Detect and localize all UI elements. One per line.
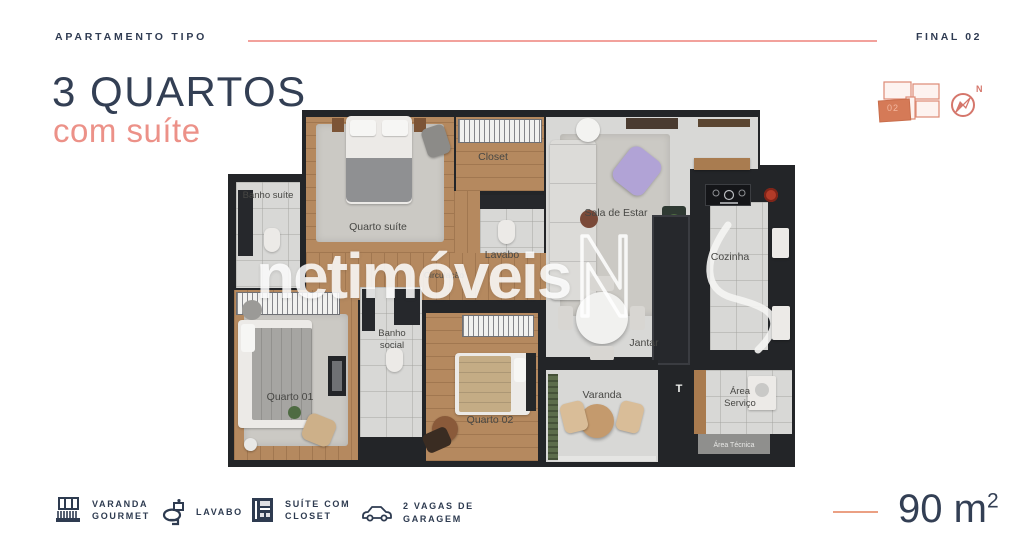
legend-line: VARANDA — [92, 498, 150, 511]
side-table — [576, 118, 600, 142]
page-title: 3 QUARTOS — [52, 68, 307, 116]
header-divider-line — [248, 40, 877, 42]
label-quarto-02: Quarto 02 — [467, 415, 514, 427]
label-quarto-01: Quarto 01 — [267, 392, 314, 404]
appliance — [772, 228, 789, 258]
page-subtitle: com suíte — [53, 112, 201, 150]
legend-item-vagas-garagem: 2 VAGAS DE GARAGEM — [361, 500, 474, 525]
legend-item-varanda-gourmet: VARANDA GOURMET — [54, 496, 150, 524]
shelf — [698, 119, 750, 127]
cooking-pot — [764, 188, 778, 202]
legend-line: 2 VAGAS DE — [403, 500, 474, 513]
area-divider-line — [833, 511, 878, 513]
legend-line: GOURMET — [92, 510, 150, 523]
dining-table — [576, 292, 628, 344]
corridor-strip — [454, 191, 480, 253]
label-cozinha: Cozinha — [711, 252, 750, 264]
label-area-servico: Área Serviço — [714, 386, 766, 409]
pillow — [350, 120, 376, 136]
blanket — [459, 356, 511, 412]
wardrobe-rack — [458, 119, 542, 143]
legend-text: VARANDA GOURMET — [92, 498, 150, 523]
legend-line: SUÍTE COM — [285, 498, 350, 511]
vanity — [362, 289, 375, 331]
toilet — [498, 220, 515, 244]
closet-icon — [249, 496, 275, 524]
keyplan-unit-number: 02 — [887, 103, 899, 113]
page-eyebrow: APARTAMENTO TIPO — [55, 31, 207, 43]
blanket — [346, 158, 412, 202]
legend-text: 2 VAGAS DE GARAGEM — [403, 500, 474, 525]
flyer-page: APARTAMENTO TIPO FINAL 02 3 QUARTOS com … — [0, 0, 1033, 541]
chair — [630, 306, 645, 330]
legend-item-lavabo: LAVABO — [162, 498, 243, 526]
label-banho-suite: Banho suíte — [243, 190, 294, 202]
shower — [394, 289, 420, 325]
area-value: 90 m — [898, 487, 987, 531]
building-keyplan: 02 — [876, 79, 950, 131]
legend-line: LAVABO — [196, 506, 243, 519]
toilet — [264, 228, 280, 252]
mirror — [332, 361, 342, 391]
counter-bar — [694, 158, 750, 170]
compass-north-label: N — [976, 84, 983, 94]
legend-line: CLOSET — [285, 510, 350, 523]
label-jantar: Jantar — [629, 338, 658, 350]
tanque-square: T — [666, 376, 692, 402]
legend-text: SUÍTE COM CLOSET — [285, 498, 350, 523]
compass: N — [948, 84, 988, 122]
varanda-divider-wall — [546, 360, 658, 370]
plant — [288, 406, 301, 419]
pillow — [241, 324, 255, 352]
pouf — [242, 300, 262, 320]
toilet — [386, 348, 403, 372]
stove-burners-icon — [706, 185, 752, 207]
label-area-tecnica: Área Técnica — [713, 440, 754, 452]
hedge-planter — [548, 374, 558, 460]
balcony-icon — [54, 496, 82, 524]
car-icon — [361, 503, 393, 523]
appliance — [772, 306, 790, 340]
label-lavabo: Lavabo — [485, 250, 519, 262]
tanque-label: T — [676, 383, 683, 395]
blanket — [252, 328, 312, 420]
unit-area: 90 m2 — [898, 487, 999, 532]
legend-item-suite-com-closet: SUÍTE COM CLOSET — [249, 496, 350, 524]
pillow — [514, 358, 526, 382]
headboard — [526, 353, 536, 411]
nightstand — [332, 118, 344, 132]
chair — [558, 306, 573, 330]
tv-sideboard — [626, 118, 678, 129]
chair — [590, 346, 614, 361]
floorplan: T Banho suíte Quarto suíte Closet Lavabo… — [228, 110, 795, 467]
wardrobe-rack — [462, 315, 534, 337]
label-closet: Closet — [478, 152, 508, 164]
label-banho-social: Banho social — [367, 328, 417, 351]
vanity — [480, 195, 544, 209]
legend-text: LAVABO — [196, 506, 243, 519]
toilet-icon — [162, 498, 186, 526]
unit-final-label: FINAL 02 — [916, 31, 982, 43]
stove — [705, 184, 751, 206]
label-varanda: Varanda — [583, 390, 622, 402]
label-quarto-suite: Quarto suíte — [349, 222, 407, 234]
service-door — [694, 370, 706, 434]
area-exponent: 2 — [987, 490, 999, 513]
label-sala-de-estar: Sala de Estar — [584, 208, 647, 220]
label-circulacao: Circulação — [424, 270, 464, 282]
glass-rail — [558, 456, 656, 461]
chair — [590, 276, 614, 291]
pillow — [382, 120, 408, 136]
floor-lamp — [244, 438, 257, 451]
legend-line: GARAGEM — [403, 513, 474, 526]
